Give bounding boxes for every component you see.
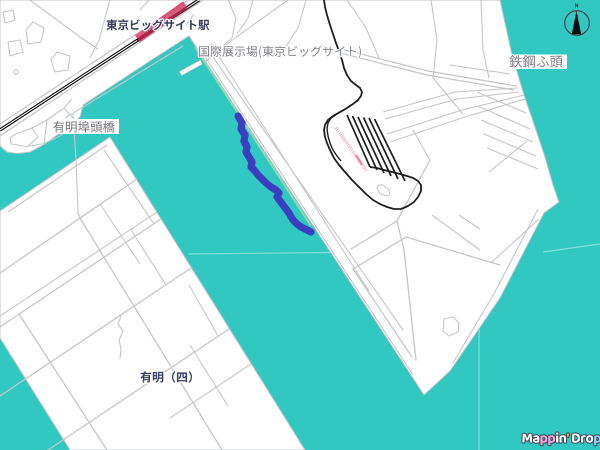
svg-text:N: N: [575, 4, 579, 10]
